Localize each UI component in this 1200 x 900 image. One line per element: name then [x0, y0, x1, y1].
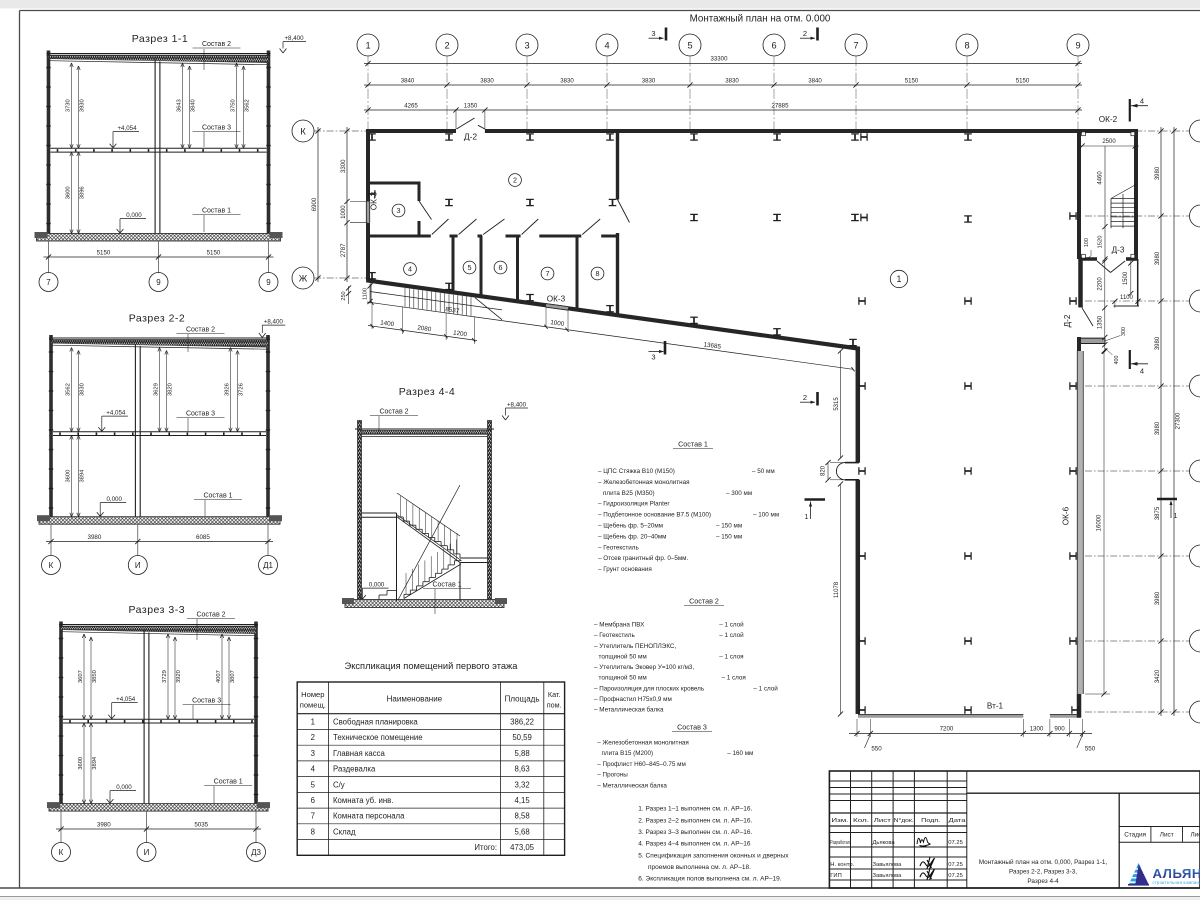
svg-text:3830: 3830	[642, 78, 656, 85]
svg-text:3750: 3750	[231, 99, 237, 112]
svg-text:Монтажный план на отм. 0,000,: Монтажный план на отм. 0,000, Разрез 1-1…	[979, 858, 1108, 866]
svg-text:3875: 3875	[1155, 506, 1161, 520]
svg-text:Завьялова: Завьялова	[873, 862, 903, 868]
svg-text:+8,400: +8,400	[507, 402, 527, 409]
svg-text:1: 1	[805, 514, 809, 521]
svg-text:50,59: 50,59	[512, 733, 532, 742]
svg-text:2500: 2500	[1102, 139, 1116, 145]
svg-text:3920: 3920	[176, 670, 182, 683]
svg-text:27885: 27885	[772, 103, 790, 110]
svg-text:550: 550	[1085, 746, 1096, 753]
svg-text:Разработал: Разработал	[830, 840, 850, 846]
svg-text:1350: 1350	[1097, 315, 1103, 329]
svg-text:3850: 3850	[92, 670, 98, 683]
svg-text:– Подбетонное основание В7.5 (: – Подбетонное основание В7.5 (М100)	[598, 511, 711, 519]
svg-text:3980: 3980	[88, 534, 102, 541]
svg-text:3840: 3840	[808, 78, 822, 85]
svg-text:7: 7	[546, 269, 550, 278]
svg-text:– Утеплитель Эковер У=100 кг/м: – Утеплитель Эковер У=100 кг/м3,	[594, 664, 694, 671]
svg-text:Д3: Д3	[251, 848, 261, 857]
svg-text:И: И	[144, 848, 150, 857]
svg-text:N°док.: N°док.	[894, 818, 914, 824]
svg-text:6: 6	[771, 40, 776, 50]
svg-text:Главная касса: Главная касса	[333, 749, 386, 758]
svg-text:– Гидроизоляция Planter: – Гидроизоляция Planter	[598, 501, 670, 508]
svg-text:820: 820	[821, 465, 827, 476]
svg-text:7: 7	[46, 278, 51, 287]
svg-text:9: 9	[156, 278, 161, 287]
svg-text:3600: 3600	[66, 186, 72, 199]
svg-text:Комната персонала: Комната персонала	[333, 812, 405, 821]
svg-text:К: К	[49, 561, 54, 570]
svg-text:4. Разрез 4–4 выполнен см. л.: 4. Разрез 4–4 выполнен см. л. АР–16	[638, 841, 751, 848]
svg-text:ОК-2: ОК-2	[1099, 115, 1118, 124]
svg-text:5. Спецификация заполнения око: 5. Спецификация заполнения оконных и две…	[638, 852, 789, 859]
svg-text:толщиной 50 мм: толщиной 50 мм	[599, 652, 647, 660]
svg-text:900: 900	[1054, 726, 1065, 733]
svg-text:3980: 3980	[97, 822, 111, 829]
svg-text:Экспликация помещений первого: Экспликация помещений первого этажа	[345, 661, 519, 671]
svg-text:– 1 слоя: – 1 слоя	[719, 653, 743, 660]
svg-text:Разрез 4-4: Разрез 4-4	[1027, 878, 1059, 885]
svg-text:1500: 1500	[1123, 271, 1129, 285]
svg-text:4: 4	[1140, 367, 1144, 376]
svg-text:– 1 слоя: – 1 слоя	[722, 675, 746, 682]
svg-text:4: 4	[604, 40, 609, 50]
svg-text:8,58: 8,58	[515, 812, 530, 821]
svg-text:3894: 3894	[80, 469, 86, 483]
svg-text:3830: 3830	[560, 78, 574, 85]
svg-text:ОК-3: ОК-3	[547, 295, 566, 304]
svg-text:2: 2	[803, 29, 807, 38]
svg-text:3926: 3926	[225, 383, 231, 396]
svg-text:16000: 16000	[1097, 514, 1103, 531]
svg-text:3629: 3629	[154, 383, 160, 396]
svg-text:– Профлист Н60–845–0.75 мм: – Профлист Н60–845–0.75 мм	[597, 761, 686, 768]
svg-text:0,000: 0,000	[369, 582, 385, 589]
svg-text:3420: 3420	[1155, 669, 1161, 683]
svg-text:– 50 мм: – 50 мм	[752, 468, 775, 475]
svg-text:9: 9	[1075, 40, 1080, 50]
svg-text:473,05: 473,05	[510, 843, 535, 852]
svg-text:400: 400	[1114, 356, 1120, 365]
svg-text:Кол.: Кол.	[853, 818, 870, 824]
svg-text:3840: 3840	[401, 78, 415, 85]
svg-text:– Железобетонная монолитная: – Железобетонная монолитная	[597, 739, 689, 747]
svg-text:Разрез 3-3: Разрез 3-3	[129, 604, 186, 616]
svg-text:Состав 2: Состав 2	[196, 612, 225, 619]
svg-text:3: 3	[311, 749, 315, 758]
svg-text:Состав 1: Состав 1	[432, 582, 461, 589]
svg-text:Стадия: Стадия	[1124, 832, 1146, 839]
svg-text:Состав 3: Состав 3	[677, 723, 707, 732]
svg-text:+8,400: +8,400	[284, 35, 304, 42]
svg-text:0,000: 0,000	[126, 212, 142, 219]
svg-text:3600: 3600	[78, 757, 84, 770]
svg-text:3830: 3830	[80, 383, 86, 396]
svg-text:Лист: Лист	[874, 818, 891, 824]
svg-text:5: 5	[311, 780, 316, 789]
svg-text:7200: 7200	[940, 726, 954, 733]
svg-text:6: 6	[311, 796, 315, 805]
svg-text:3730: 3730	[66, 99, 72, 112]
svg-text:К: К	[300, 126, 306, 136]
svg-text:Дата: Дата	[949, 818, 967, 824]
svg-text:Д1: Д1	[263, 561, 273, 570]
svg-text:Площадь: Площадь	[505, 695, 540, 704]
svg-text:+4,054: +4,054	[106, 410, 126, 417]
svg-text:4007: 4007	[216, 670, 222, 683]
svg-text:Завьялова: Завьялова	[873, 873, 903, 879]
svg-text:Лист: Лист	[1160, 832, 1174, 839]
svg-text:1: 1	[897, 274, 902, 284]
svg-text:1: 1	[365, 40, 370, 50]
svg-text:– ЦПС Стяжка В10 (М150): – ЦПС Стяжка В10 (М150)	[598, 468, 675, 475]
svg-text:2: 2	[444, 40, 449, 50]
svg-text:27300: 27300	[1176, 412, 1182, 429]
svg-text:Вт-1: Вт-1	[987, 702, 1004, 711]
svg-text:С/у: С/у	[333, 780, 345, 789]
svg-text:3980: 3980	[1155, 251, 1161, 265]
svg-text:1. Разрез 1–1 выполнен см. л.: 1. Разрез 1–1 выполнен см. л. АР–16.	[638, 806, 752, 813]
svg-text:Номер: Номер	[301, 690, 324, 699]
svg-text:– Металлическая балка: – Металлическая балка	[597, 781, 667, 789]
svg-text:– Утеплитель ПЕНОПЛЭКС,: – Утеплитель ПЕНОПЛЭКС,	[594, 643, 676, 650]
svg-text:3,32: 3,32	[515, 780, 530, 789]
svg-text:5,68: 5,68	[515, 828, 530, 837]
svg-text:5150: 5150	[97, 250, 111, 257]
svg-text:ОК-6: ОК-6	[1062, 506, 1071, 525]
svg-text:5150: 5150	[905, 78, 919, 85]
svg-text:Разрез 2-2: Разрез 2-2	[129, 313, 186, 325]
svg-text:Комната уб. инв.: Комната уб. инв.	[333, 796, 393, 805]
svg-text:3607: 3607	[78, 670, 84, 683]
svg-text:– 150 мм: – 150 мм	[716, 523, 742, 530]
svg-text:3830: 3830	[480, 78, 494, 85]
svg-text:3980: 3980	[1155, 166, 1161, 180]
svg-text:3896: 3896	[80, 186, 86, 199]
svg-text:Разрез 2-2, Разрез 3-3,: Разрез 2-2, Разрез 3-3,	[1009, 869, 1077, 876]
svg-text:3980: 3980	[1155, 336, 1161, 350]
svg-text:– 100 мм: – 100 мм	[753, 512, 779, 519]
svg-text:3300: 3300	[340, 159, 347, 173]
svg-text:3. Разрез 3–3 выполнен см. л.: 3. Разрез 3–3 выполнен см. л. АР–16.	[638, 829, 752, 836]
svg-text:3726: 3726	[239, 383, 245, 396]
svg-text:07.25: 07.25	[948, 840, 963, 846]
svg-text:+8,400: +8,400	[264, 319, 284, 326]
svg-text:ГИП: ГИП	[830, 873, 841, 879]
svg-text:33300: 33300	[711, 56, 729, 63]
svg-text:6085: 6085	[196, 534, 210, 541]
svg-text:6: 6	[499, 263, 503, 272]
svg-text:– 1 слой: – 1 слой	[719, 631, 744, 639]
svg-text:0,000: 0,000	[116, 784, 132, 791]
svg-text:– 300 мм: – 300 мм	[726, 490, 752, 497]
svg-text:Состав 3: Состав 3	[202, 125, 231, 132]
svg-text:100: 100	[1084, 238, 1090, 247]
svg-text:Дьякова: Дьякова	[873, 840, 896, 846]
svg-text:1350: 1350	[464, 103, 478, 110]
svg-text:2: 2	[803, 393, 807, 402]
svg-text:– Мембрана ПВХ: – Мембрана ПВХ	[594, 621, 645, 629]
svg-text:Ж: Ж	[299, 273, 308, 283]
svg-text:помещ.: помещ.	[300, 701, 326, 710]
svg-text:5315: 5315	[834, 397, 840, 411]
svg-text:3: 3	[651, 353, 655, 362]
svg-text:07.25: 07.25	[948, 873, 963, 879]
svg-text:проемов выполнена см. л. АР–18: проемов выполнена см. л. АР–18.	[648, 864, 751, 871]
svg-text:толщиной 50 мм: толщиной 50 мм	[599, 674, 647, 682]
svg-text:пом.: пом.	[547, 701, 562, 710]
svg-text:+4,054: +4,054	[117, 125, 137, 132]
svg-text:5: 5	[687, 40, 692, 50]
svg-text:4,15: 4,15	[515, 796, 531, 805]
svg-text:плита В15 (М200): плита В15 (М200)	[602, 750, 654, 757]
svg-text:– 1 слой: – 1 слой	[719, 621, 744, 629]
svg-text:Кат.: Кат.	[548, 690, 561, 699]
svg-text:– Геотекстиль: – Геотекстиль	[594, 632, 635, 639]
svg-text:5150: 5150	[1016, 78, 1030, 85]
svg-text:6900: 6900	[311, 197, 318, 211]
svg-text:1000: 1000	[340, 205, 347, 219]
svg-text:– 150 мм: – 150 мм	[716, 533, 742, 540]
svg-text:Разрез 4-4: Разрез 4-4	[399, 386, 456, 398]
svg-text:8: 8	[964, 40, 969, 50]
svg-text:3729: 3729	[162, 670, 168, 683]
svg-text:– Профнастил Н75х0,9 мм: – Профнастил Н75х0,9 мм	[594, 696, 672, 703]
svg-text:3807: 3807	[230, 670, 236, 683]
svg-text:3820: 3820	[168, 383, 174, 396]
svg-text:Состав 1: Состав 1	[202, 208, 231, 215]
svg-text:– 160 мм: – 160 мм	[727, 750, 753, 757]
svg-text:Раздевалка: Раздевалка	[333, 765, 376, 774]
svg-text:0,000: 0,000	[106, 496, 122, 503]
svg-text:3600: 3600	[66, 470, 72, 483]
svg-text:ОК-3: ОК-3	[370, 191, 379, 210]
svg-text:– 1 слой: – 1 слой	[753, 684, 778, 692]
svg-text:1: 1	[311, 717, 315, 726]
svg-text:Состав 1: Состав 1	[678, 440, 708, 449]
svg-text:– Отсев гранитный фр. 0–5мм.: – Отсев гранитный фр. 0–5мм.	[598, 554, 689, 562]
svg-text:1300: 1300	[1030, 726, 1044, 733]
svg-text:И: И	[135, 561, 141, 570]
svg-text:3980: 3980	[1155, 421, 1161, 435]
svg-text:2. Разрез 2–2 выполнен см. л.: 2. Разрез 2–2 выполнен см. л. АР–16.	[638, 817, 752, 824]
svg-text:+4,054: +4,054	[116, 696, 136, 703]
svg-text:5: 5	[468, 263, 472, 272]
svg-text:9: 9	[266, 278, 271, 287]
svg-text:5035: 5035	[194, 822, 208, 829]
svg-text:11078: 11078	[834, 581, 840, 598]
svg-text:Изм.: Изм.	[831, 818, 849, 824]
svg-text:Состав 2: Состав 2	[379, 409, 408, 416]
svg-text:2: 2	[311, 733, 315, 742]
svg-text:– Геотекстиль: – Геотекстиль	[598, 544, 639, 551]
svg-text:Монтажный план на отм. 0.000: Монтажный план на отм. 0.000	[690, 14, 831, 25]
svg-text:1520: 1520	[1097, 236, 1103, 249]
svg-text:Состав 1: Состав 1	[214, 779, 243, 786]
svg-text:4460: 4460	[1097, 171, 1103, 185]
svg-text:3840: 3840	[191, 99, 197, 112]
svg-text:8,63: 8,63	[515, 765, 530, 774]
svg-text:3643: 3643	[177, 99, 183, 112]
svg-text:К: К	[59, 848, 64, 857]
svg-text:1100: 1100	[1120, 295, 1134, 301]
svg-text:Состав 2: Состав 2	[186, 327, 215, 334]
svg-text:– Металлическая балка: – Металлическая балка	[594, 706, 664, 714]
svg-text:3: 3	[397, 206, 401, 215]
svg-text:Наименование: Наименование	[387, 695, 443, 704]
svg-text:Н. контр.: Н. контр.	[830, 862, 854, 868]
svg-text:3: 3	[651, 29, 655, 38]
svg-text:Д-2: Д-2	[1063, 314, 1072, 327]
svg-text:4: 4	[311, 765, 316, 774]
svg-text:– Щебень фр. 20–40мм: – Щебень фр. 20–40мм	[598, 532, 666, 540]
svg-text:4: 4	[408, 265, 412, 274]
svg-text:– Прогоны: – Прогоны	[597, 772, 628, 779]
svg-text:386,22: 386,22	[510, 717, 534, 726]
svg-text:плита В25 (М350): плита В25 (М350)	[603, 490, 655, 497]
svg-text:Состав 3: Состав 3	[186, 411, 215, 418]
svg-text:Разрез 1-1: Разрез 1-1	[132, 33, 189, 45]
svg-text:4: 4	[1140, 97, 1144, 106]
svg-text:Состав 2: Состав 2	[202, 41, 231, 48]
svg-text:Итого:: Итого:	[474, 843, 497, 852]
svg-text:Состав 1: Состав 1	[203, 493, 232, 500]
svg-text:Свободная планировка: Свободная планировка	[333, 717, 418, 726]
svg-text:550: 550	[871, 746, 882, 753]
svg-text:Склад: Склад	[333, 828, 356, 837]
svg-text:3562: 3562	[66, 383, 72, 396]
svg-text:8: 8	[311, 828, 315, 837]
svg-text:3894: 3894	[92, 756, 98, 770]
svg-text:3980: 3980	[1155, 591, 1161, 605]
svg-text:5150: 5150	[207, 250, 221, 257]
svg-text:строительная компани: строительная компани	[1153, 880, 1200, 885]
svg-text:2787: 2787	[340, 243, 347, 257]
svg-text:2200: 2200	[1097, 277, 1103, 291]
svg-text:Состав 2: Состав 2	[689, 597, 719, 606]
svg-text:– Железобетонная монолитная: – Железобетонная монолитная	[598, 478, 690, 486]
svg-text:8: 8	[596, 269, 600, 278]
svg-text:3: 3	[524, 40, 529, 50]
svg-text:3930: 3930	[80, 99, 86, 112]
svg-text:07.25: 07.25	[948, 862, 963, 868]
svg-text:2: 2	[513, 176, 517, 185]
svg-text:АЛЬЯН: АЛЬЯН	[1153, 866, 1200, 881]
svg-text:Д-2: Д-2	[464, 132, 478, 142]
svg-text:– Грунт основания: – Грунт основания	[598, 566, 652, 573]
svg-text:3830: 3830	[725, 78, 739, 85]
svg-text:300: 300	[1121, 327, 1127, 336]
svg-text:Д-3: Д-3	[1112, 246, 1125, 255]
svg-text:Лис: Лис	[1191, 832, 1200, 839]
svg-text:– Щебень фр. 5–20мм: – Щебень фр. 5–20мм	[598, 522, 663, 530]
svg-text:7: 7	[853, 40, 858, 50]
svg-text:1100: 1100	[363, 288, 369, 300]
svg-text:Подп.: Подп.	[921, 818, 940, 824]
svg-text:5,88: 5,88	[515, 749, 530, 758]
svg-text:– Пароизоляция для плоских кро: – Пароизоляция для плоских кровель	[594, 685, 705, 692]
svg-text:6. Экспликация полов выполнена: 6. Экспликация полов выполнена см. л. АР…	[638, 876, 781, 883]
svg-text:Состав 3: Состав 3	[192, 698, 221, 705]
svg-text:4265: 4265	[404, 103, 418, 110]
svg-text:Техническое помещение: Техническое помещение	[333, 733, 423, 742]
svg-text:7: 7	[311, 812, 315, 821]
svg-text:3562: 3562	[245, 99, 251, 112]
